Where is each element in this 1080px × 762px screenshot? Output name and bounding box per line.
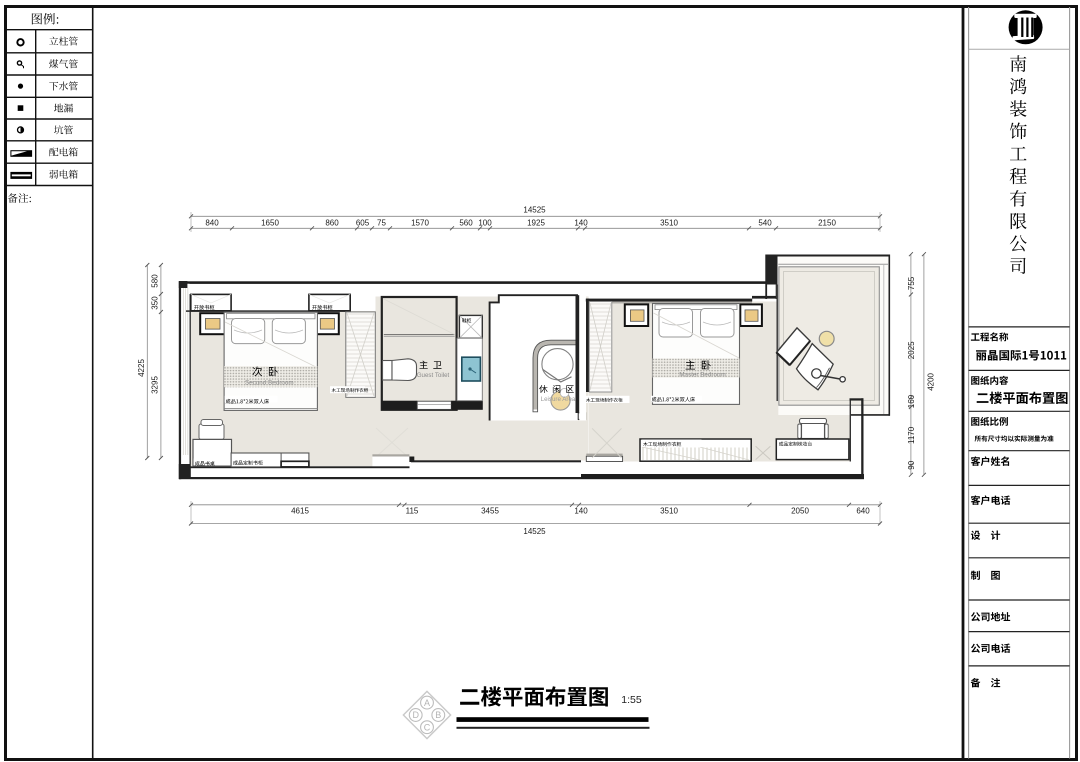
svg-text:Second Bedroom: Second Bedroom bbox=[245, 379, 294, 386]
svg-text:1570: 1570 bbox=[411, 219, 429, 228]
svg-text:640: 640 bbox=[856, 507, 870, 516]
svg-text:A: A bbox=[424, 698, 430, 708]
svg-text:840: 840 bbox=[205, 219, 219, 228]
svg-text:1:55: 1:55 bbox=[621, 694, 642, 706]
svg-text:4200: 4200 bbox=[927, 372, 936, 390]
svg-text:3295: 3295 bbox=[151, 376, 160, 394]
svg-text:4225: 4225 bbox=[137, 359, 146, 377]
svg-text:14525: 14525 bbox=[523, 527, 546, 536]
svg-text:140: 140 bbox=[574, 219, 588, 228]
svg-text:14525: 14525 bbox=[523, 206, 546, 215]
svg-text:Master Bedroom: Master Bedroom bbox=[679, 371, 726, 378]
svg-text:1650: 1650 bbox=[261, 219, 279, 228]
svg-text:540: 540 bbox=[758, 219, 772, 228]
svg-text:75: 75 bbox=[377, 219, 386, 228]
svg-text:605: 605 bbox=[356, 219, 370, 228]
svg-text:4615: 4615 bbox=[291, 507, 309, 516]
svg-text:1170: 1170 bbox=[907, 426, 916, 444]
svg-text:2025: 2025 bbox=[907, 341, 916, 359]
svg-text:3455: 3455 bbox=[481, 507, 499, 516]
svg-text:Guest Toilet: Guest Toilet bbox=[417, 372, 450, 379]
svg-text:560: 560 bbox=[459, 219, 473, 228]
svg-text:D: D bbox=[412, 710, 419, 720]
svg-text:350: 350 bbox=[151, 296, 160, 310]
svg-text:100: 100 bbox=[478, 219, 492, 228]
svg-text:C: C bbox=[424, 722, 431, 732]
svg-text:Leisure Area: Leisure Area bbox=[541, 396, 576, 403]
svg-text:3510: 3510 bbox=[660, 219, 678, 228]
svg-text:2150: 2150 bbox=[818, 219, 836, 228]
svg-text:B: B bbox=[435, 710, 441, 720]
svg-text:1925: 1925 bbox=[527, 219, 545, 228]
svg-text:140: 140 bbox=[574, 507, 588, 516]
svg-text:115: 115 bbox=[406, 507, 419, 516]
svg-text:860: 860 bbox=[325, 219, 339, 228]
svg-text:3510: 3510 bbox=[660, 507, 678, 516]
svg-text:2050: 2050 bbox=[791, 507, 809, 516]
svg-text:580: 580 bbox=[151, 274, 160, 288]
svg-text:755: 755 bbox=[907, 276, 916, 290]
